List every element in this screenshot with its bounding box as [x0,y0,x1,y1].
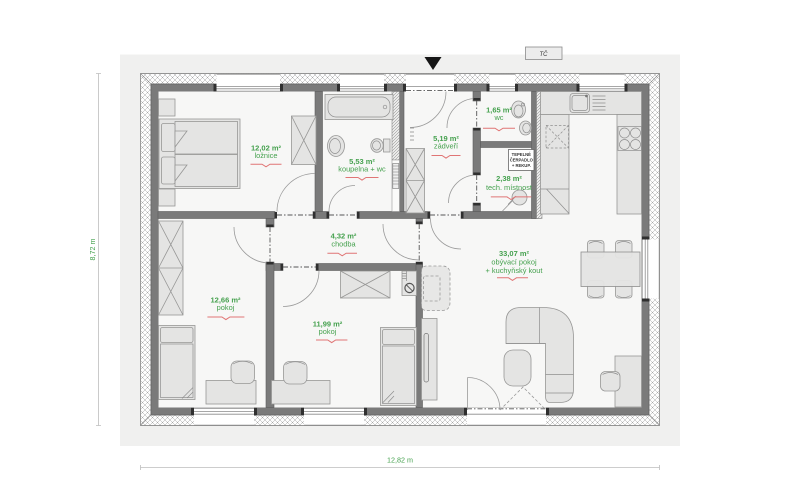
svg-text:12,82 m: 12,82 m [387,456,413,465]
svg-text:koupelna + wc: koupelna + wc [338,165,386,174]
svg-text:ČERPADLO: ČERPADLO [510,158,534,163]
svg-text:chodba: chodba [331,240,356,249]
svg-text:2,38 m²: 2,38 m² [496,174,522,183]
svg-text:+ kuchyňský kout: + kuchyňský kout [486,266,543,275]
svg-text:TČ: TČ [540,51,549,58]
svg-text:zádveří: zádveří [434,141,459,150]
svg-text:ložnice: ložnice [254,151,277,160]
svg-text:pokoj: pokoj [217,303,235,312]
svg-text:+ REKUP.: + REKUP. [512,163,531,168]
svg-text:TEPELNÉ: TEPELNÉ [512,152,532,157]
svg-text:wc: wc [493,113,503,122]
svg-text:pokoj: pokoj [319,327,337,336]
svg-text:tech. místnost: tech. místnost [486,183,532,192]
svg-text:8,72 m: 8,72 m [88,239,97,261]
